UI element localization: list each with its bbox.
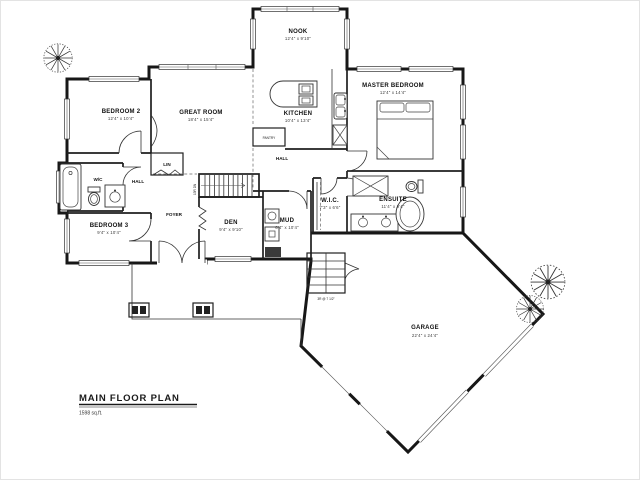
room-label-garage: GARAGE: [411, 325, 439, 331]
master-bed-symbol: [377, 101, 433, 159]
room-dims-garage: 22'4" x 24'4": [412, 333, 438, 338]
window: [461, 125, 466, 159]
window: [322, 367, 349, 394]
room-label-nook: NOOK: [289, 29, 308, 35]
room-dims-nook: 12'4" x 9'10": [285, 36, 311, 41]
double-vanity-symbol: [351, 214, 398, 231]
door-garage-man: [345, 263, 359, 279]
door-wic: [321, 178, 337, 194]
stair-note: 13R DN: [193, 183, 197, 195]
plan-area: 1598 sq.ft.: [79, 411, 102, 417]
plan-title: MAIN FLOOR PLAN: [79, 393, 180, 404]
room-dims-great-room: 18'4" x 15'4": [188, 117, 214, 122]
room-dims-master-bedroom: 12'4" x 14'4": [380, 90, 406, 95]
range-symbol: [333, 125, 347, 145]
window: [360, 404, 387, 431]
door-bedroom2: [119, 131, 141, 153]
main-bath-fixtures: [60, 164, 125, 210]
tree-symbol: [44, 44, 72, 72]
garage-door: [483, 324, 534, 377]
shower-symbol: [353, 176, 388, 196]
floor-plan-drawing: 13R DN 3R @ 7 1/2": [1, 1, 640, 480]
window: [461, 187, 466, 217]
garage-entry-steps: 3R @ 7 1/2": [307, 253, 345, 301]
room-dims-den: 9'4" x 9'10": [219, 227, 243, 232]
window: [65, 99, 70, 139]
tree-symbol: [531, 265, 565, 299]
room-dims-bedroom2: 12'4" x 10'4": [108, 116, 134, 121]
room-label-hall-left: HALL: [132, 179, 144, 184]
porch-column: [193, 303, 213, 317]
toilet-symbol: [406, 180, 423, 193]
room-label-kitchen: KITCHEN: [284, 111, 312, 117]
room-label-bedroom2: BEDROOM 2: [102, 109, 141, 115]
room-label-bedroom3: BEDROOM 3: [90, 223, 129, 229]
window: [65, 219, 70, 253]
room-label-master-bedroom: MASTER BEDROOM: [362, 83, 424, 89]
room-label-linen: LIN: [163, 162, 171, 167]
window: [251, 19, 256, 49]
bench-symbol: [265, 247, 281, 257]
room-label-hall-center: HALL: [276, 156, 288, 161]
mud-room-fixtures: [265, 209, 281, 257]
window: [79, 261, 129, 266]
garage-steps-note: 3R @ 7 1/2": [317, 297, 334, 301]
room-label-great-room: GREAT ROOM: [179, 110, 222, 116]
floor-plan-page: 13R DN 3R @ 7 1/2": [0, 0, 640, 480]
room-label-ensuite: ENSUITE: [379, 197, 407, 203]
room-label-pantry: PANTRY: [263, 136, 277, 140]
bathtub-symbol: [60, 164, 81, 210]
basement-stairs: 13R DN: [193, 174, 259, 197]
door-den-french: [199, 207, 206, 230]
window: [89, 77, 139, 82]
kitchen-fixtures: [270, 69, 347, 149]
room-label-den: DEN: [224, 220, 237, 226]
exterior-walls: [59, 9, 543, 452]
laundry-symbol: [265, 209, 279, 223]
room-dims-kitchen: 10'4" x 13'4": [285, 118, 311, 123]
title-block: MAIN FLOOR PLAN 1598 sq.ft.: [79, 393, 197, 417]
room-label-wc: W/C: [94, 177, 104, 182]
window: [215, 257, 251, 262]
room-dims-bedroom3: 9'4" x 10'4": [97, 230, 121, 235]
front-porch: [129, 263, 301, 346]
fireplace-symbol: [151, 115, 157, 147]
window: [357, 67, 401, 72]
room-label-mud: MUD: [280, 218, 295, 224]
window: [345, 19, 350, 49]
window: [461, 85, 466, 119]
door-master: [347, 151, 367, 171]
garage-door: [418, 390, 469, 443]
toilet-symbol: [88, 187, 100, 206]
room-dims-ensuite: 11'4" x 9'4": [381, 204, 405, 209]
door-bedroom3: [129, 219, 151, 241]
window: [409, 67, 453, 72]
tree-symbol: [517, 296, 544, 323]
room-label-foyer: FOYER: [166, 212, 183, 217]
window: [261, 7, 339, 12]
door-mud: [289, 191, 307, 209]
kitchen-sink-symbol: [334, 93, 347, 119]
room-dims-wic: 7'3" x 6'6": [320, 205, 341, 210]
window: [159, 65, 245, 70]
vanity-sink-symbol: [105, 185, 125, 207]
room-dims-mud: 6'4" x 10'4": [275, 225, 299, 230]
room-label-wic: W.I.C.: [321, 198, 339, 204]
